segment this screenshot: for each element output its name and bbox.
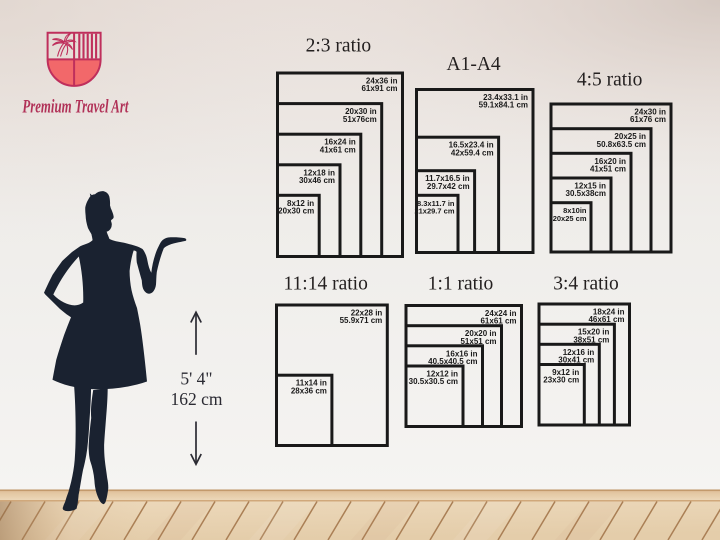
svg-text:A1-A4: A1-A4 bbox=[447, 54, 501, 75]
svg-text:51x51 cm: 51x51 cm bbox=[460, 337, 496, 346]
svg-text:38x51 cm: 38x51 cm bbox=[573, 335, 609, 344]
svg-text:30x41 cm: 30x41 cm bbox=[558, 356, 594, 365]
svg-text:23x30 cm: 23x30 cm bbox=[543, 376, 579, 385]
svg-text:61x61 cm: 61x61 cm bbox=[480, 317, 516, 326]
svg-text:20x30 cm: 20x30 cm bbox=[278, 207, 314, 216]
svg-text:5' 4": 5' 4" bbox=[180, 369, 212, 389]
svg-text:28x36 cm: 28x36 cm bbox=[291, 386, 327, 395]
svg-text:30.5x30.5 cm: 30.5x30.5 cm bbox=[409, 377, 458, 386]
svg-text:50.8x63.5 cm: 50.8x63.5 cm bbox=[597, 140, 646, 149]
svg-text:46x61 cm: 46x61 cm bbox=[588, 315, 624, 324]
svg-text:42x59.4 cm: 42x59.4 cm bbox=[451, 148, 494, 157]
svg-text:11:14 ratio: 11:14 ratio bbox=[284, 274, 368, 295]
svg-text:1:1 ratio: 1:1 ratio bbox=[428, 274, 494, 295]
svg-text:20x25 cm: 20x25 cm bbox=[553, 214, 587, 223]
svg-text:41x61 cm: 41x61 cm bbox=[320, 145, 356, 154]
svg-text:40.5x40.5 cm: 40.5x40.5 cm bbox=[428, 357, 477, 366]
svg-text:29.7x42 cm: 29.7x42 cm bbox=[427, 182, 470, 191]
svg-text:51x76cm: 51x76cm bbox=[343, 115, 377, 124]
svg-text:2:3 ratio: 2:3 ratio bbox=[306, 35, 372, 56]
svg-text:41x51 cm: 41x51 cm bbox=[590, 165, 626, 174]
svg-text:4:5 ratio: 4:5 ratio bbox=[577, 70, 643, 91]
svg-text:30x46 cm: 30x46 cm bbox=[299, 176, 335, 185]
svg-text:61x91 cm: 61x91 cm bbox=[361, 84, 397, 93]
svg-text:30.5x38cm: 30.5x38cm bbox=[566, 189, 606, 198]
svg-text:61x76 cm: 61x76 cm bbox=[630, 115, 666, 124]
svg-text:59.1x84.1 cm: 59.1x84.1 cm bbox=[479, 101, 528, 110]
svg-text:162 cm: 162 cm bbox=[170, 389, 222, 409]
svg-text:Premium Travel Art: Premium Travel Art bbox=[22, 98, 129, 118]
svg-text:55.9x71 cm: 55.9x71 cm bbox=[340, 316, 383, 325]
svg-text:21x29.7 cm: 21x29.7 cm bbox=[414, 207, 454, 216]
svg-text:3:4 ratio: 3:4 ratio bbox=[553, 274, 619, 295]
